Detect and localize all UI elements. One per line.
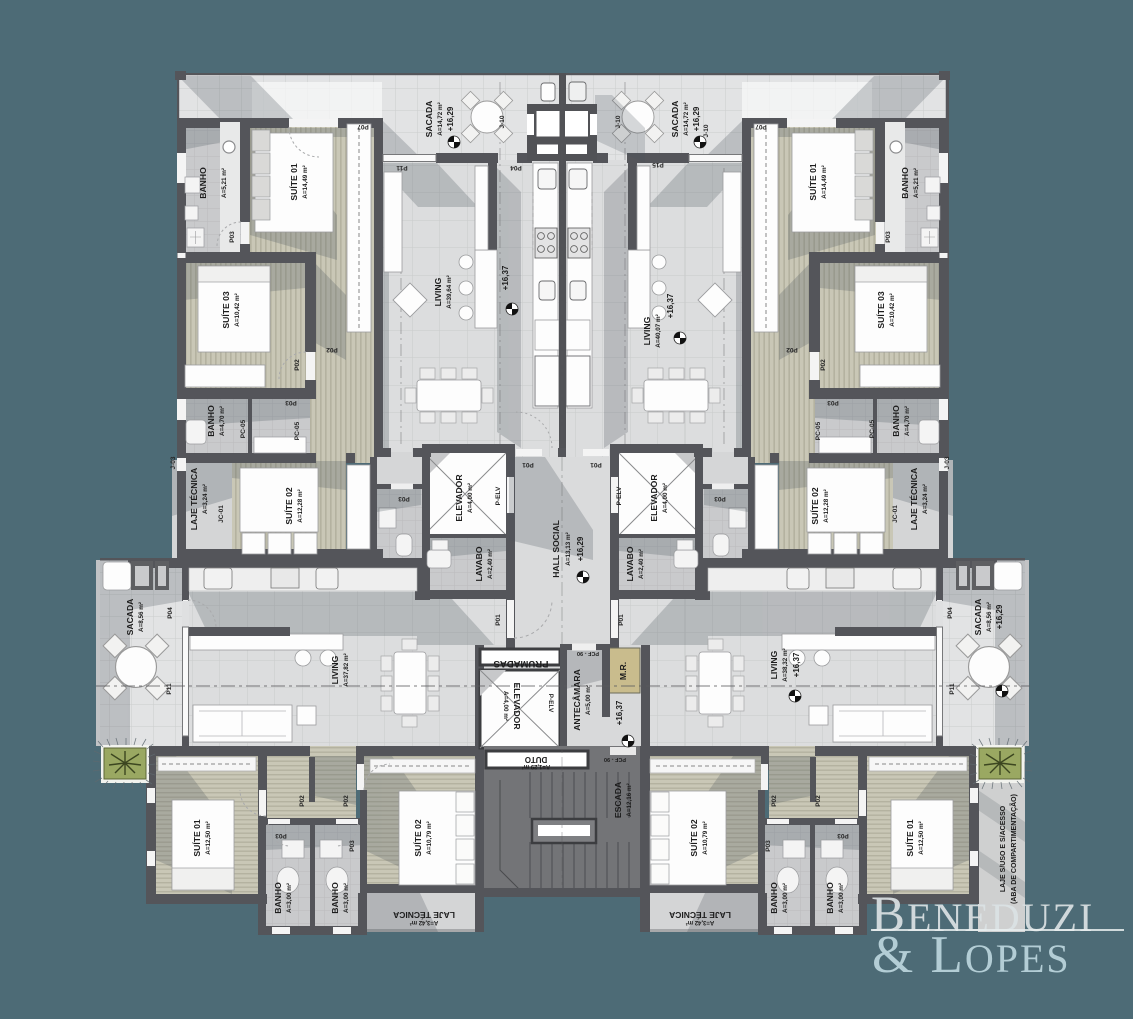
svg-text:P03: P03 <box>275 832 287 839</box>
svg-text:LAJE TÉCNICA: LAJE TÉCNICA <box>909 468 919 531</box>
svg-text:J-03: J-03 <box>944 456 951 469</box>
svg-text:J-10: J-10 <box>703 124 710 137</box>
svg-text:A=13,13 m²: A=13,13 m² <box>565 532 572 565</box>
svg-text:A=39,64 m²: A=39,64 m² <box>446 275 453 308</box>
svg-text:BANHO: BANHO <box>769 882 779 914</box>
svg-text:SACADA: SACADA <box>973 599 983 636</box>
svg-text:A=3,00 m²: A=3,00 m² <box>343 883 350 913</box>
svg-text:BANHO: BANHO <box>330 882 340 914</box>
svg-text:P01: P01 <box>590 461 602 468</box>
svg-text:A=4,00 m²: A=4,00 m² <box>662 483 669 513</box>
svg-text:A=3,24 m²: A=3,24 m² <box>922 484 929 514</box>
svg-text:BANHO: BANHO <box>825 882 835 914</box>
svg-text:P02: P02 <box>343 795 350 807</box>
svg-text:P03: P03 <box>765 840 772 852</box>
svg-text:+16,37: +16,37 <box>615 700 624 725</box>
svg-text:P04: P04 <box>167 607 174 619</box>
svg-text:A=2,40 m²: A=2,40 m² <box>487 549 494 579</box>
svg-text:A=3,00 m²: A=3,00 m² <box>286 883 293 913</box>
svg-text:P03: P03 <box>398 495 410 502</box>
svg-text:A=3,00 m²: A=3,00 m² <box>838 883 845 913</box>
svg-text:A=3,00 m²: A=3,00 m² <box>782 883 789 913</box>
svg-text:PC-05: PC-05 <box>294 421 301 440</box>
svg-text:HALL SOCIAL: HALL SOCIAL <box>551 520 561 578</box>
svg-text:A=5,00 m²: A=5,00 m² <box>585 685 592 715</box>
svg-text:P03: P03 <box>229 231 236 243</box>
svg-text:JC-01: JC-01 <box>892 505 899 523</box>
svg-text:LAJE TÉCNICA: LAJE TÉCNICA <box>669 910 731 920</box>
svg-text:SUÍTE 01: SUÍTE 01 <box>289 163 299 200</box>
svg-text:P11: P11 <box>949 683 956 695</box>
svg-text:DUTO: DUTO <box>525 755 548 764</box>
svg-text:ELEVADOR: ELEVADOR <box>512 682 522 730</box>
svg-text:P11: P11 <box>396 164 408 171</box>
svg-text:P03: P03 <box>285 399 297 406</box>
svg-text:PC-05: PC-05 <box>240 419 247 438</box>
svg-text:P02: P02 <box>786 346 798 353</box>
svg-text:+16,37: +16,37 <box>501 265 510 290</box>
svg-text:A=14,72 m²: A=14,72 m² <box>437 102 444 135</box>
svg-text:JC-01: JC-01 <box>218 505 225 523</box>
svg-text:A=12,16 m²: A=12,16 m² <box>626 783 633 816</box>
svg-text:P03: P03 <box>837 832 849 839</box>
svg-text:ELEVADOR: ELEVADOR <box>649 474 659 522</box>
svg-text:+16,29: +16,29 <box>692 106 701 131</box>
svg-text:A=1,29 m²: A=1,29 m² <box>522 763 551 770</box>
svg-text:A=12,28 m²: A=12,28 m² <box>297 489 304 522</box>
svg-text:P-ELV: P-ELV <box>616 486 623 505</box>
svg-text:LAJE TÉCNICA: LAJE TÉCNICA <box>189 468 199 531</box>
svg-text:LAVABO: LAVABO <box>474 546 484 581</box>
svg-text:A=4,70 m²: A=4,70 m² <box>219 406 226 436</box>
svg-text:A=4,00 m²: A=4,00 m² <box>502 691 509 721</box>
svg-text:J-10: J-10 <box>615 115 622 128</box>
svg-text:P02: P02 <box>299 795 306 807</box>
svg-text:P04: P04 <box>510 164 522 171</box>
svg-text:P02: P02 <box>294 359 301 371</box>
svg-text:LIVING: LIVING <box>769 650 779 679</box>
svg-text:P03: P03 <box>714 495 726 502</box>
svg-text:BANHO: BANHO <box>198 167 208 199</box>
svg-text:P-ELV: P-ELV <box>547 694 554 713</box>
svg-text:J-03: J-03 <box>170 456 177 469</box>
svg-text:PC-05: PC-05 <box>815 421 822 440</box>
svg-text:+16,37: +16,37 <box>666 293 675 318</box>
svg-text:BANHO: BANHO <box>273 882 283 914</box>
svg-text:P03: P03 <box>885 231 892 243</box>
svg-text:A=3,42 m²: A=3,42 m² <box>686 919 715 926</box>
svg-text:P-ELV: P-ELV <box>495 486 502 505</box>
svg-text:A=10,42 m²: A=10,42 m² <box>889 293 896 326</box>
svg-text:A=4,00 m²: A=4,00 m² <box>467 483 474 513</box>
svg-text:A=12,50 m²: A=12,50 m² <box>918 821 925 854</box>
svg-text:A=10,79 m²: A=10,79 m² <box>702 821 709 854</box>
svg-text:P02: P02 <box>815 795 822 807</box>
svg-text:P01: P01 <box>495 614 502 626</box>
svg-text:P03: P03 <box>349 840 356 852</box>
svg-text:SUÍTE 02: SUÍTE 02 <box>413 819 423 856</box>
svg-text:P01: P01 <box>618 614 625 626</box>
svg-text:A=3,24 m²: A=3,24 m² <box>202 484 209 514</box>
svg-text:A=40,07 m²: A=40,07 m² <box>655 314 662 347</box>
svg-text:SUÍTE 02: SUÍTE 02 <box>689 819 699 856</box>
svg-text:LAJE TÉCNICA: LAJE TÉCNICA <box>393 910 455 920</box>
svg-text:+16,29: +16,29 <box>995 604 1004 629</box>
svg-text:A=12,50 m²: A=12,50 m² <box>205 821 212 854</box>
svg-text:A=8,56 m²: A=8,56 m² <box>138 602 145 632</box>
svg-text:SUÍTE 02: SUÍTE 02 <box>284 487 294 524</box>
svg-text:SUÍTE 03: SUÍTE 03 <box>221 291 231 328</box>
svg-text:A=5,21 m²: A=5,21 m² <box>221 168 228 198</box>
svg-text:PC-05: PC-05 <box>869 419 876 438</box>
svg-text:A=14,72 m²: A=14,72 m² <box>683 102 690 135</box>
svg-text:A=38,32 m²: A=38,32 m² <box>782 648 789 681</box>
svg-text:BANHO: BANHO <box>891 405 901 437</box>
svg-text:SUÍTE 02: SUÍTE 02 <box>810 487 820 524</box>
svg-text:M.R.: M.R. <box>618 662 628 680</box>
svg-text:SACADA: SACADA <box>424 101 434 138</box>
svg-text:P11: P11 <box>166 683 173 695</box>
svg-text:P02: P02 <box>820 359 827 371</box>
svg-text:P07: P07 <box>755 123 767 130</box>
svg-text:SUÍTE 01: SUÍTE 01 <box>192 819 202 856</box>
svg-text:LAJE S/USO E S/ACESSO: LAJE S/USO E S/ACESSO <box>1000 805 1007 892</box>
svg-text:A=2,40 m²: A=2,40 m² <box>638 549 645 579</box>
svg-text:A=37,82 m²: A=37,82 m² <box>343 653 350 686</box>
svg-text:A=3,42 m²: A=3,42 m² <box>410 919 439 926</box>
svg-text:A=5,21 m²: A=5,21 m² <box>913 168 920 198</box>
svg-text:SUÍTE 01: SUÍTE 01 <box>905 819 915 856</box>
svg-text:A=4,70 m²: A=4,70 m² <box>904 406 911 436</box>
svg-text:ESCADA: ESCADA <box>613 782 623 818</box>
svg-text:P04: P04 <box>947 607 954 619</box>
svg-text:A=10,79 m²: A=10,79 m² <box>426 821 433 854</box>
svg-text:SUÍTE 03: SUÍTE 03 <box>876 291 886 328</box>
svg-text:P07: P07 <box>357 123 369 130</box>
svg-text:PCF - 90: PCF - 90 <box>604 756 626 762</box>
svg-text:SACADA: SACADA <box>125 599 135 636</box>
svg-text:+16,29: +16,29 <box>576 536 585 561</box>
svg-text:ANTECÂMARA: ANTECÂMARA <box>571 669 582 731</box>
svg-text:LIVING: LIVING <box>642 316 652 345</box>
svg-text:SUÍTE 01: SUÍTE 01 <box>808 163 818 200</box>
svg-text:A=10,42 m²: A=10,42 m² <box>234 293 241 326</box>
svg-text:(ABA DE COMPARTIMENTAÇÃO): (ABA DE COMPARTIMENTAÇÃO) <box>1009 794 1018 904</box>
svg-text:A=14,49 m²: A=14,49 m² <box>302 165 309 198</box>
svg-text:BANHO: BANHO <box>900 167 910 199</box>
svg-text:PCF - 90: PCF - 90 <box>577 650 599 656</box>
svg-text:P02: P02 <box>326 346 338 353</box>
svg-text:J-10: J-10 <box>499 115 506 128</box>
svg-text:+16,29: +16,29 <box>446 106 455 131</box>
svg-text:LIVING: LIVING <box>433 277 443 306</box>
svg-text:SACADA: SACADA <box>670 101 680 138</box>
svg-text:PRUMADAS: PRUMADAS <box>494 658 549 669</box>
svg-text:LIVING: LIVING <box>330 655 340 684</box>
svg-text:BANHO: BANHO <box>206 405 216 437</box>
svg-text:P02: P02 <box>771 795 778 807</box>
svg-text:ELEVADOR: ELEVADOR <box>454 474 464 522</box>
svg-text:P15: P15 <box>652 161 664 168</box>
svg-text:A=14,49 m²: A=14,49 m² <box>821 165 828 198</box>
svg-text:LAVABO: LAVABO <box>625 546 635 581</box>
svg-text:A=12,28 m²: A=12,28 m² <box>823 489 830 522</box>
svg-text:P01: P01 <box>522 461 534 468</box>
svg-text:P03: P03 <box>827 399 839 406</box>
svg-text:+16,37: +16,37 <box>792 652 801 677</box>
svg-text:A=8,56 m²: A=8,56 m² <box>986 602 993 632</box>
